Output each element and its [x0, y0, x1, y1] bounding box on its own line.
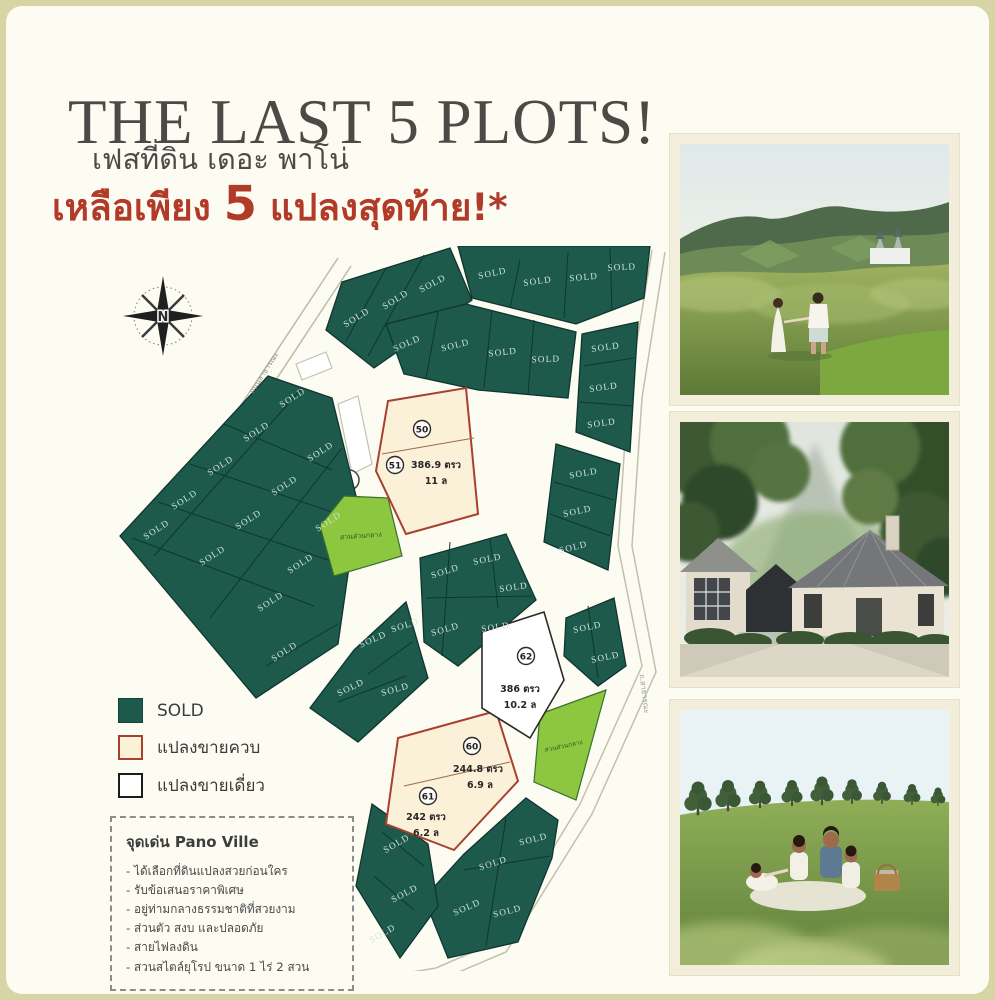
svg-text:51: 51: [389, 461, 402, 471]
map-legend: SOLDแปลงขายควบแปลงขายเดี่ยว: [118, 698, 265, 799]
svg-text:62: 62: [520, 652, 533, 662]
feature-item: อยู่ท่ามกลางธรรมชาติที่สวยงาม: [126, 900, 338, 919]
legend-label: แปลงขายควบ: [157, 734, 260, 761]
feature-item: ส่วนตัว สงบ และปลอดภัย: [126, 919, 338, 938]
legend-label: แปลงขายเดี่ยว: [157, 772, 265, 799]
legend-item-sold: SOLD: [118, 698, 265, 723]
svg-text:11 ล: 11 ล: [425, 476, 448, 487]
legend-swatch-sold: [118, 698, 143, 723]
promo-prefix: เหลือเพียง: [52, 186, 224, 229]
features-list: ได้เลือกที่ดินแปลงสวยก่อนใครรับข้อเสนอรา…: [126, 862, 338, 977]
svg-text:386 ตรว: 386 ตรว: [500, 684, 540, 695]
poster-card: THE LAST 5 PLOTS! เฟสที่ดิน เดอะ พาโน่ เ…: [6, 6, 989, 994]
legend-swatch-bundle: [118, 735, 143, 760]
legend-item-single: แปลงขายเดี่ยว: [118, 772, 265, 799]
feature-item: สวนสไตล์ยุโรป ขนาด 1 ไร่ 2 สวน: [126, 958, 338, 977]
features-title: จุดเด่น Pano Ville: [126, 830, 338, 854]
feature-item: ได้เลือกที่ดินแปลงสวยก่อนใคร: [126, 862, 338, 881]
promo-number: 5: [224, 176, 257, 232]
svg-text:386.9 ตรว: 386.9 ตรว: [411, 460, 461, 471]
feature-item: รับข้อเสนอราคาพิเศษ: [126, 881, 338, 900]
legend-label: SOLD: [157, 701, 204, 721]
compass-rose: N: [123, 276, 203, 356]
svg-text:50: 50: [416, 425, 429, 435]
photo-modern-barn-house: [669, 411, 960, 688]
svg-text:SOLD: SOLD: [607, 261, 636, 272]
photo-family-picnic: [669, 699, 960, 976]
legend-swatch-single: [118, 773, 143, 798]
svg-text:6.2 ล: 6.2 ล: [413, 828, 439, 839]
svg-text:10.2 ล: 10.2 ล: [504, 700, 537, 711]
svg-text:244.8 ตรว: 244.8 ตรว: [453, 764, 503, 775]
compass-n-label: N: [158, 310, 169, 325]
svg-text:60: 60: [466, 742, 479, 752]
promo-line: เหลือเพียง 5 แปลงสุดท้าย!*: [52, 176, 508, 237]
features-box: จุดเด่น Pano Ville ได้เลือกที่ดินแปลงสวย…: [110, 816, 354, 991]
svg-text:61: 61: [422, 792, 435, 802]
feature-item: สายไฟลงดิน: [126, 938, 338, 957]
svg-text:242 ตรว: 242 ตรว: [406, 812, 446, 823]
photo-couple-walking-meadow: [669, 133, 960, 406]
svg-text:SOLD: SOLD: [531, 354, 560, 365]
promo-suffix: แปลงสุดท้าย!*: [257, 186, 508, 229]
legend-item-bundle: แปลงขายควบ: [118, 734, 265, 761]
svg-text:6.9 ล: 6.9 ล: [467, 780, 493, 791]
